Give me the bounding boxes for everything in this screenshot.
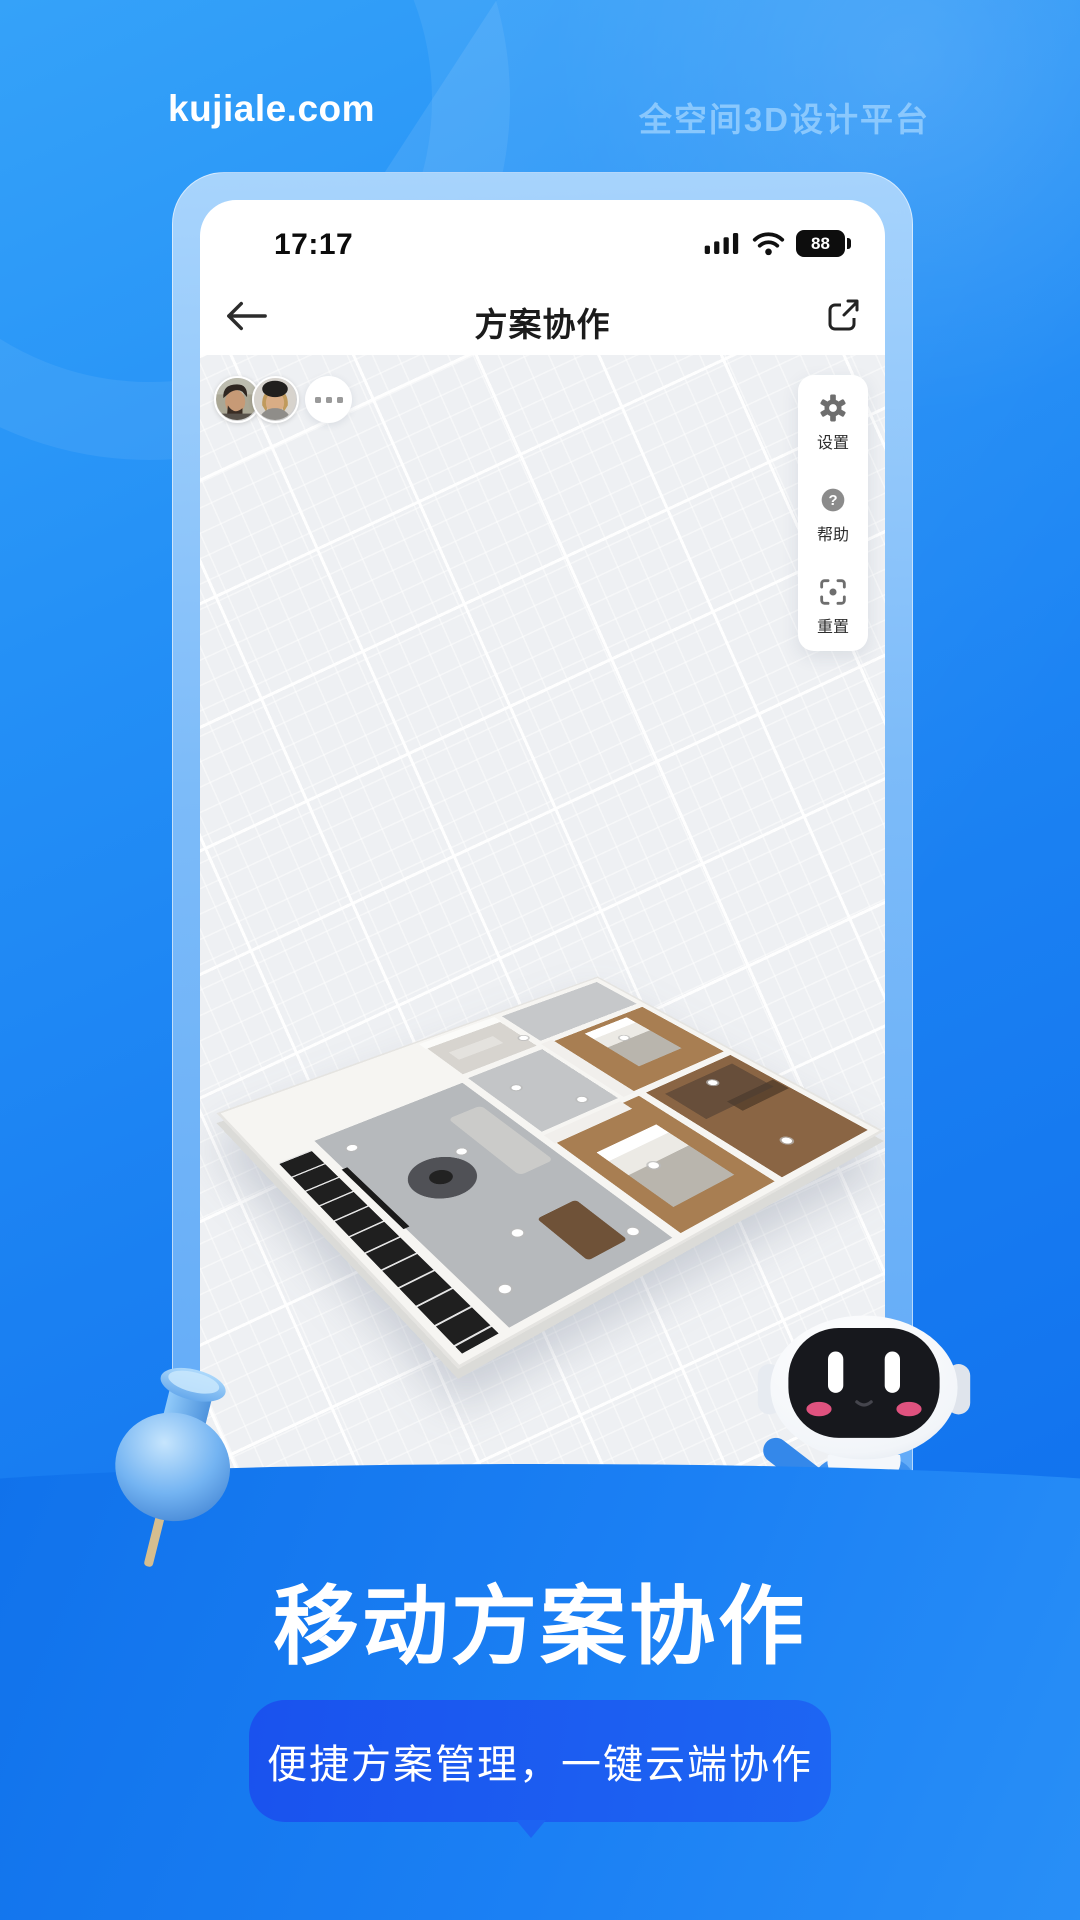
ellipsis-icon[interactable] [305, 376, 352, 423]
nav-bar: 方案协作 [200, 290, 885, 355]
battery-icon: 88 [796, 230, 845, 257]
reset-focus-icon [816, 575, 850, 609]
dark-rug [665, 1064, 774, 1120]
bed-pillow-2 [597, 1124, 669, 1161]
hero-subtitle-bubble: 便捷方案管理，一键云端协作 [249, 1700, 831, 1822]
cellular-signal-icon [704, 232, 741, 255]
sofa [448, 1105, 553, 1175]
tv-panel [342, 1167, 410, 1229]
floorplan-bedroom [539, 1091, 784, 1239]
help-label: 帮助 [817, 521, 849, 545]
floorplan-hallway [460, 1045, 626, 1136]
collaborator-row [214, 376, 352, 423]
help-button[interactable]: ? 帮助 [816, 483, 850, 545]
kitchen-island [449, 1036, 503, 1060]
bed-second [597, 1124, 735, 1207]
bed-pillow [585, 1017, 636, 1039]
floorplan-study [638, 1051, 877, 1183]
ceiling-light [345, 1144, 359, 1152]
ceiling-light [779, 1136, 794, 1144]
question-mark-icon: ? [816, 483, 850, 517]
coffee-table [425, 1167, 458, 1187]
avatar-woman-icon[interactable] [252, 376, 299, 423]
brand-tagline: 全空间3D设计平台 [639, 93, 930, 141]
desk [727, 1080, 789, 1111]
dining-table [537, 1200, 627, 1261]
pushpin-3d-icon [82, 1352, 262, 1587]
gear-icon [816, 391, 850, 425]
floorplan-kitchen [415, 1015, 544, 1078]
floorplan-living-room [306, 1079, 682, 1336]
reset-view-button[interactable]: 重置 [816, 575, 850, 637]
ceiling-light [618, 1035, 630, 1041]
floorplan-balcony [270, 1145, 510, 1362]
canvas-side-toolbar: 设置 ? 帮助 重置 [798, 375, 868, 651]
svg-text:?: ? [828, 493, 837, 509]
hero-title: 移动方案协作 [0, 1556, 1080, 1681]
wardrobe [541, 1040, 635, 1097]
ceiling-light [706, 1079, 719, 1086]
hero-subtitle-text: 便捷方案管理，一键云端协作 [267, 1732, 813, 1790]
floorplan-3d [218, 875, 874, 1375]
share-export-icon[interactable] [823, 296, 863, 336]
wardrobe-2 [544, 1101, 632, 1143]
status-icons: 88 [704, 230, 845, 257]
settings-button[interactable]: 设置 [816, 391, 850, 453]
settings-label: 设置 [817, 429, 849, 453]
ceiling-light [510, 1084, 523, 1091]
wifi-icon [752, 231, 785, 256]
ceiling-light [575, 1096, 589, 1103]
marketing-banner: kujiale.com 全空间3D设计平台 17:17 [0, 0, 1080, 1920]
kitchen-counter [419, 1017, 501, 1049]
status-time: 17:17 [274, 228, 353, 262]
ceiling-light [496, 1283, 513, 1295]
battery-level: 88 [811, 234, 830, 254]
bed-blanket [608, 1030, 682, 1066]
bed-master [585, 1017, 682, 1066]
ceiling-light [454, 1147, 469, 1156]
brand-logo-text: kujiale.com [168, 88, 375, 130]
reset-label: 重置 [817, 613, 849, 637]
ceiling-light [625, 1226, 641, 1236]
bed-blanket-2 [629, 1145, 735, 1207]
ceiling-light [646, 1161, 661, 1170]
page-title: 方案协作 [200, 298, 885, 346]
floorplan-model [221, 978, 880, 1365]
floorplan-bathroom [495, 979, 644, 1045]
ceiling-light [517, 1035, 529, 1041]
round-rug [395, 1149, 491, 1207]
status-bar: 17:17 [200, 200, 885, 290]
ceiling-light [509, 1228, 525, 1239]
floorplan-master-bedroom [538, 1004, 731, 1100]
